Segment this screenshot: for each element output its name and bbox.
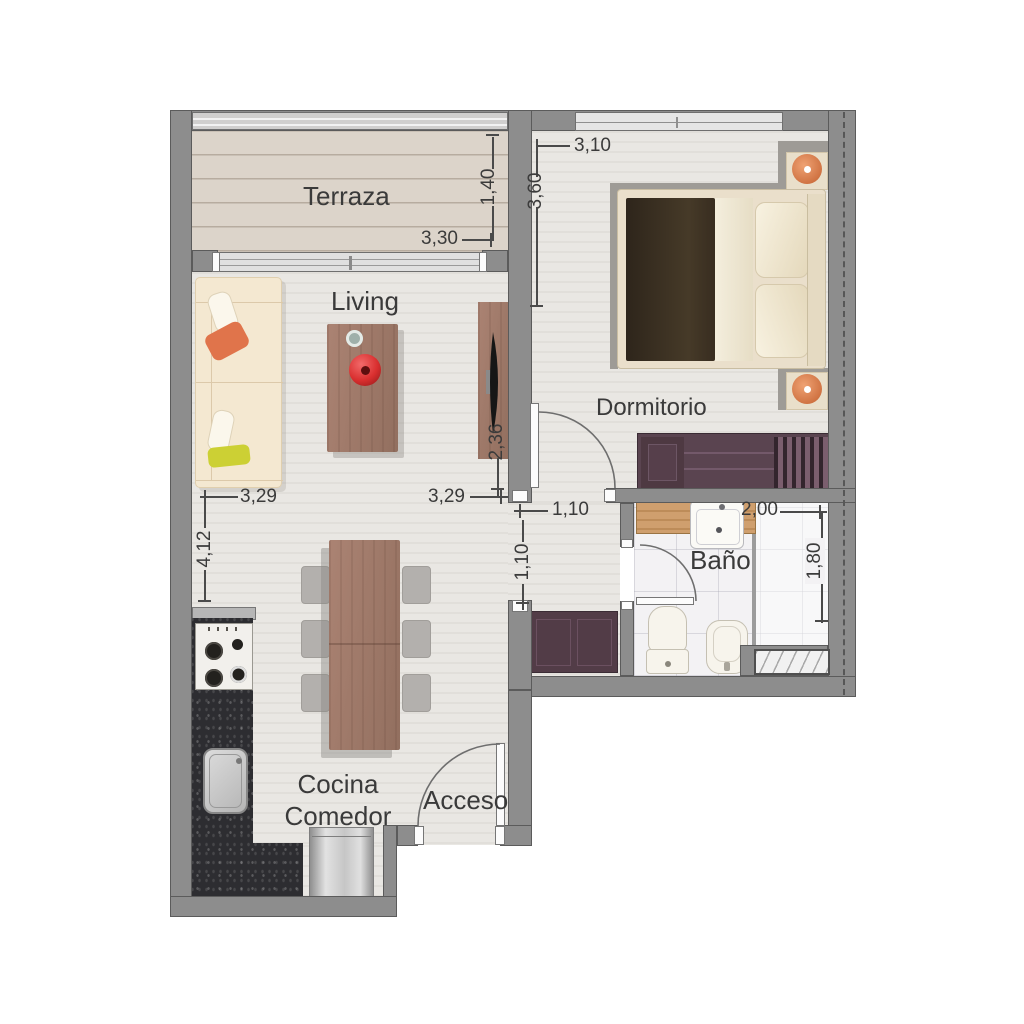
dim-dorm-depth-line2 <box>536 207 538 307</box>
dim-tv-unit-tick <box>491 488 504 490</box>
dim-hall-doorway-tick <box>519 504 521 518</box>
room-label-acceso: Acceso <box>423 787 508 814</box>
dim-tv-wall-line <box>470 496 508 498</box>
dim-terraza-depth-label: 1,40 <box>479 164 499 210</box>
dim-bano-depth-label: 1,80 <box>805 538 825 584</box>
dim-terraza-width-label: 3,30 <box>421 229 458 249</box>
dim-tv-unit-line <box>497 458 499 498</box>
room-label-cocina-line2: Comedor <box>262 800 414 832</box>
dim-hall-passage-line2 <box>522 584 524 610</box>
dim-dorm-depth-tick <box>530 305 543 307</box>
dim-living-depth-line1 <box>204 498 206 528</box>
dim-terraza-depth-tick <box>486 134 499 136</box>
dim-sofa-label: 3,29 <box>240 487 277 507</box>
dim-bano-depth-tick <box>815 620 828 622</box>
room-label-bano: Baño <box>690 547 751 574</box>
room-label-cocina-comedor: Cocina Comedor <box>262 768 414 832</box>
floor-plan: 3,30 1,40 3,10 3,60 3,29 4,12 3,29 2,36 … <box>0 0 1024 1024</box>
bedroom-door-arc <box>539 412 615 488</box>
dim-bano-width-label: 2,00 <box>741 500 778 520</box>
dim-tv-wall-label: 3,29 <box>428 487 465 507</box>
bathroom-door-arc <box>640 545 696 601</box>
room-label-living: Living <box>331 288 399 315</box>
dim-hall-passage-label: 1,10 <box>513 539 533 585</box>
dim-living-depth-tick <box>198 600 211 602</box>
room-label-cocina-line1: Cocina <box>262 768 414 800</box>
arc-overlay <box>0 0 1024 1024</box>
dim-living-depth-label: 4,12 <box>195 526 215 572</box>
room-label-dormitorio: Dormitorio <box>596 394 707 421</box>
dim-dorm-width-label: 3,10 <box>574 136 611 156</box>
dim-living-depth-line2 <box>204 570 206 602</box>
dim-tv-wall-tick <box>500 490 502 504</box>
dim-hall-doorway-label: 1,10 <box>552 500 589 520</box>
room-label-terraza: Terraza <box>303 183 390 210</box>
dim-terraza-depth-line2 <box>492 206 494 241</box>
dim-dorm-width-line <box>538 145 570 147</box>
dim-hall-passage-tick <box>516 602 529 604</box>
dim-terraza-width-line <box>462 239 492 241</box>
